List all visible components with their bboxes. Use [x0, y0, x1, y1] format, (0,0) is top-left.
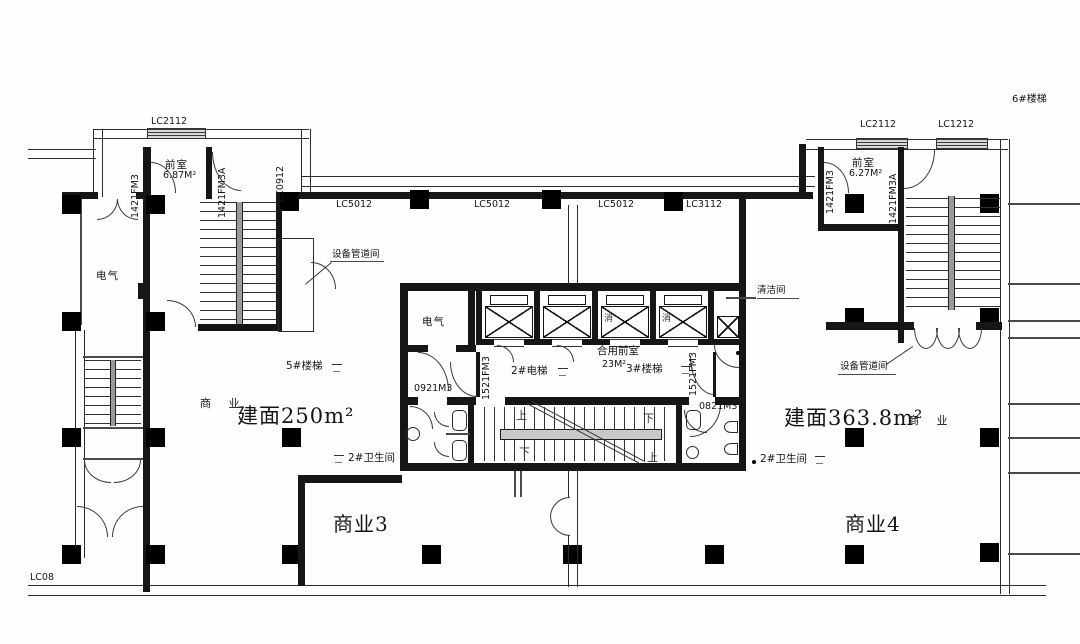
cleaning-room-shaft	[717, 316, 739, 338]
column	[146, 428, 165, 447]
sink-fixture	[406, 427, 420, 441]
detail-index-marker	[332, 364, 342, 376]
label-lc2112-right: LC2112	[860, 120, 896, 130]
column	[845, 545, 864, 564]
stair-landing-bar	[500, 429, 662, 440]
door-scallop	[958, 328, 982, 349]
column	[542, 190, 561, 209]
leader-line	[726, 297, 756, 299]
wall	[447, 397, 476, 405]
label-electrical-left: 电气	[96, 268, 119, 283]
label-door-1521fm3-right: 1521FM3	[689, 346, 699, 396]
elevator-counterweight	[548, 295, 586, 305]
wall	[826, 322, 914, 330]
door-scallop	[914, 328, 938, 349]
label-stair-down: 下	[643, 410, 654, 426]
label-elevator2: 2#电梯	[511, 366, 547, 377]
door-frame	[138, 283, 146, 299]
column	[62, 195, 81, 214]
door-arc	[167, 300, 196, 327]
wall	[143, 147, 150, 331]
wall	[400, 345, 428, 352]
wall	[456, 345, 476, 352]
core-left-wall	[400, 283, 408, 471]
label-stair-up: 上	[516, 407, 527, 423]
label-commercial-right: 商 业	[908, 412, 955, 428]
grid-line	[1008, 283, 1080, 285]
label-stair3: 3#楼梯	[626, 364, 662, 375]
column	[980, 428, 999, 447]
door-arc	[114, 460, 141, 483]
grid-line	[1008, 203, 1080, 205]
shaft-wall	[534, 291, 540, 345]
label-stair5: 5#楼梯	[286, 361, 322, 372]
wc-fixture	[452, 410, 467, 431]
elevator-cab	[485, 306, 533, 338]
label-toilet2-right: 2#卫生间	[760, 454, 807, 465]
leader-underline	[757, 298, 799, 299]
urinal-fixture	[724, 421, 738, 433]
label-electrical-core: 电气	[422, 314, 445, 329]
column	[62, 312, 81, 331]
leader-underline	[838, 374, 896, 375]
grid-line	[1008, 437, 1080, 439]
grid-line	[1008, 553, 1080, 555]
detail-index-marker	[334, 455, 344, 467]
door-scallop	[936, 328, 960, 349]
door-arc-1421fm3a	[904, 150, 935, 189]
wall	[799, 144, 806, 199]
column	[146, 545, 165, 564]
label-shared-lobby-area: 23M²	[602, 360, 626, 370]
label-lc1212: LC1212	[938, 120, 974, 130]
label-anteroom-right-area: 6.27M²	[849, 169, 882, 179]
elevator-counterweight	[606, 295, 644, 305]
leader-line	[886, 346, 913, 365]
stair6-rail	[948, 196, 955, 310]
wall-stub	[520, 471, 522, 497]
grid-line	[1008, 337, 1080, 339]
door-pivot-dot	[736, 351, 740, 355]
floor-plan-canvas: 消 消	[0, 0, 1080, 644]
fire-elevator-label: 消	[604, 315, 613, 324]
column	[845, 194, 864, 213]
wall	[818, 224, 902, 231]
column	[282, 428, 301, 447]
fire-elevator-label: 消	[662, 315, 671, 324]
column	[705, 545, 724, 564]
stall-divider	[446, 433, 470, 435]
label-area-3638: 建面363.8m²	[784, 402, 923, 432]
wc-fixture	[686, 410, 701, 430]
door-arc	[97, 199, 118, 220]
door-arc-1521fm3	[450, 362, 477, 397]
exterior-wall	[28, 149, 96, 159]
wall	[198, 324, 282, 331]
core-right-wall	[739, 199, 746, 471]
shaft-wall	[650, 291, 656, 345]
wall	[83, 427, 143, 429]
stall-door-arc	[434, 412, 449, 427]
shaft-wall	[708, 291, 714, 345]
label-door-0821m3: 0821M3	[699, 402, 737, 412]
label-cleaning-room: 清洁间	[757, 286, 786, 296]
label-window-lc5012-2: LC5012	[474, 200, 510, 210]
wall-stub	[514, 471, 516, 497]
core-top-wall	[400, 283, 746, 291]
door-arc	[77, 506, 108, 537]
grid-line	[1008, 320, 1080, 322]
label-window-lc5012-1: LC5012	[336, 200, 372, 210]
label-door-1421fm3-right: 1421FM3	[826, 154, 836, 214]
label-area-250: 建面250m²	[237, 400, 354, 430]
leader-underline	[330, 261, 384, 262]
wall	[468, 291, 475, 347]
label-stair6: 6#楼梯	[1012, 95, 1047, 106]
label-window-lc0912: LC0912	[276, 150, 286, 202]
column	[146, 195, 165, 214]
wall	[80, 199, 82, 325]
wall	[400, 397, 418, 405]
wall	[676, 405, 682, 463]
label-door-0921m3: 0921M3	[414, 384, 452, 394]
label-door-1421fm3-left: 1421FM3	[131, 156, 141, 218]
label-equip-duct-left: 设备管道间	[332, 250, 380, 260]
grid-line	[1008, 403, 1080, 405]
shaft-wall	[476, 291, 482, 345]
door-arc	[557, 345, 574, 362]
door-arc	[112, 506, 143, 537]
label-lc2112-left: LC2112	[151, 117, 187, 127]
grid-line	[1008, 472, 1080, 474]
door-arc	[550, 516, 570, 536]
equip-duct-room	[278, 238, 314, 332]
label-anteroom-left-area: 6.87M²	[163, 171, 196, 181]
detail-index-marker	[558, 368, 568, 380]
label-toilet2-left: 2#卫生间	[348, 453, 395, 464]
stair5-rail	[236, 202, 243, 324]
label-door-1421fm3a-right: 1421FM3A	[889, 156, 899, 224]
wc-fixture	[452, 440, 467, 461]
shop3-left-wall	[298, 475, 305, 586]
elevator-cab	[543, 306, 591, 338]
column	[980, 543, 999, 562]
stall-door-arc	[434, 442, 449, 457]
label-window-lc5012-3: LC5012	[598, 200, 634, 210]
column	[422, 545, 441, 564]
exterior-wall	[93, 129, 103, 197]
label-shop3: 商业3	[333, 508, 389, 537]
door-arc	[714, 345, 739, 368]
column	[146, 312, 165, 331]
door-pivot-dot	[752, 460, 756, 464]
curtain-wall-band	[301, 176, 815, 187]
label-shop4: 商业4	[845, 508, 901, 537]
urinal-fixture	[724, 443, 738, 455]
elevator-counterweight	[490, 295, 528, 305]
label-stair-up: 上	[647, 449, 658, 465]
elevator-counterweight	[664, 295, 702, 305]
door-arc	[410, 406, 433, 429]
label-equip-duct-right: 设备管道间	[840, 362, 888, 372]
column	[62, 428, 81, 447]
label-window-lc3112: LC3112	[686, 200, 722, 210]
door-arc	[550, 497, 570, 517]
shaft-wall	[592, 291, 598, 345]
door-arc	[84, 460, 111, 483]
column	[62, 545, 81, 564]
column	[410, 190, 429, 209]
shop3-top-wall	[298, 475, 402, 483]
label-door-1521fm3-left: 1521FM3	[482, 350, 492, 400]
detail-index-marker	[815, 456, 825, 468]
wall	[83, 356, 143, 358]
label-window-lc08: LC08	[30, 573, 54, 583]
window-lc1212	[936, 138, 988, 149]
sink-fixture	[686, 446, 699, 459]
label-stair-down: 下	[519, 444, 530, 460]
column	[664, 192, 683, 211]
window-lc2112	[147, 128, 206, 139]
stair-block-bottom-wall	[400, 463, 746, 471]
exterior-wall	[1000, 139, 1010, 594]
door-arc	[497, 345, 514, 362]
stair-rail	[110, 360, 116, 426]
label-shared-lobby: 合用前室	[597, 346, 639, 357]
exterior-wall-bottom	[28, 585, 1046, 596]
partition-wall	[568, 205, 578, 285]
label-door-1421fm3a-left: 1421FM3A	[218, 152, 228, 218]
